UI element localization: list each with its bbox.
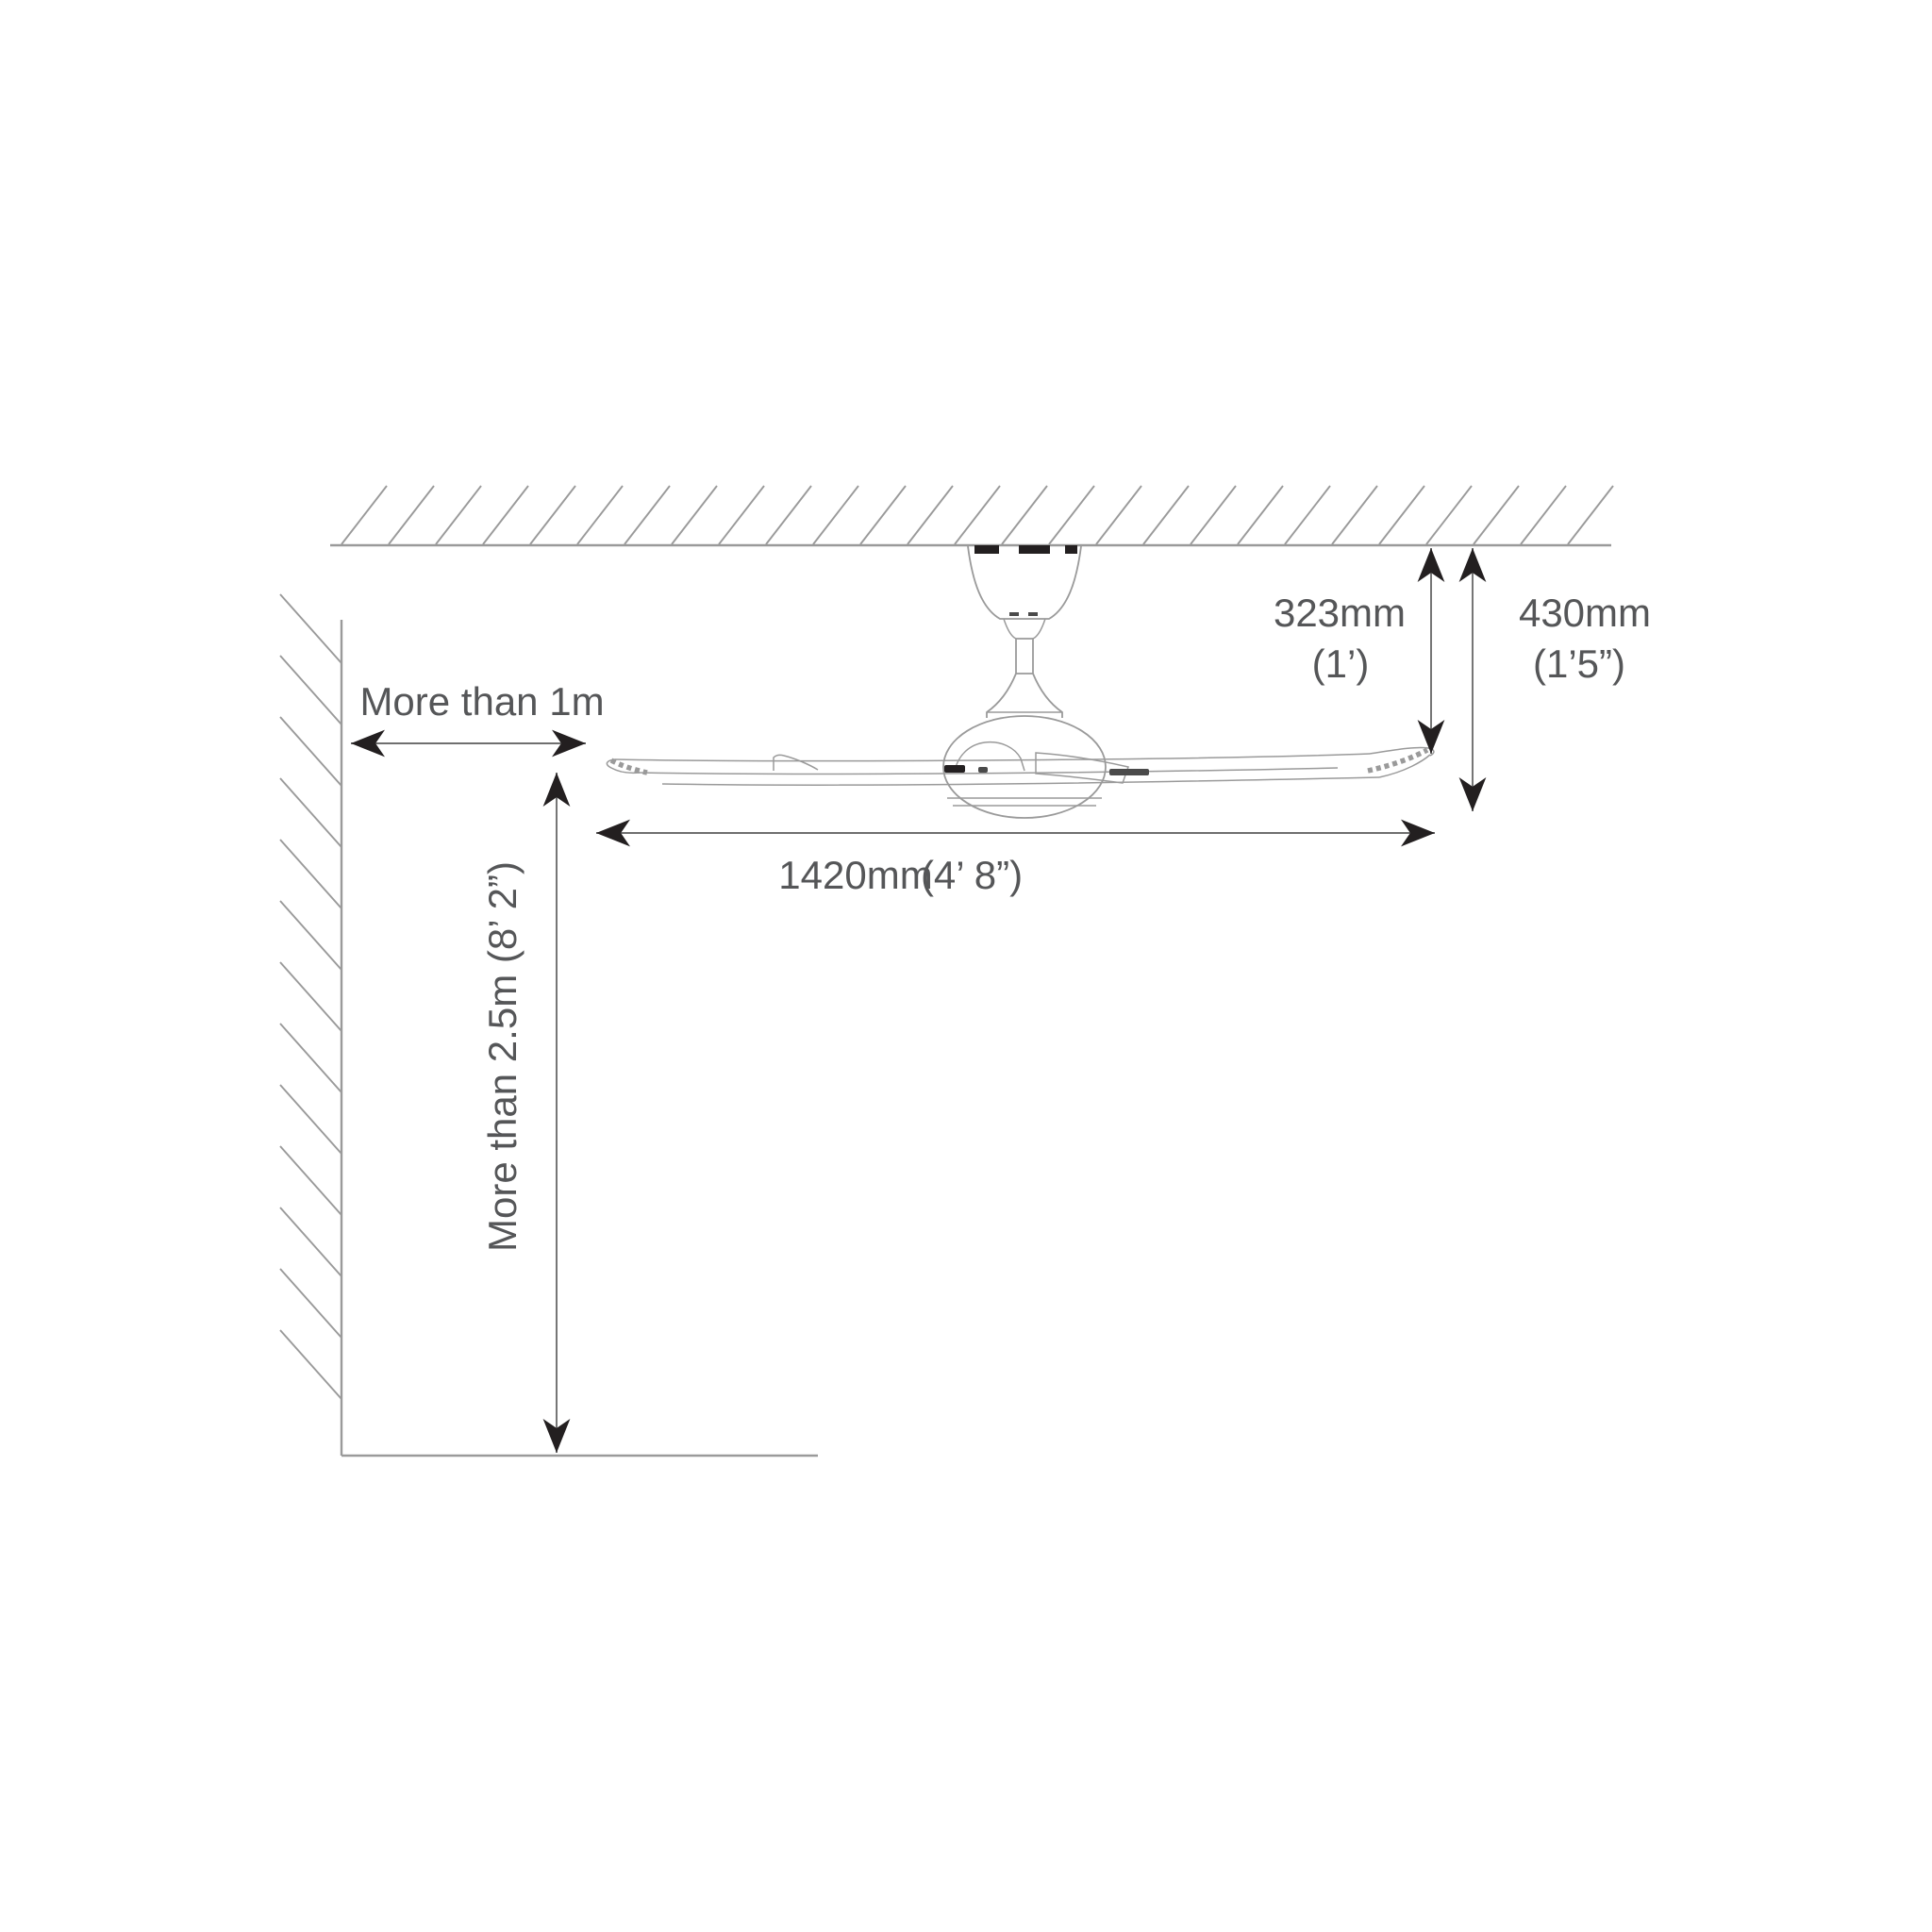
hatch-line xyxy=(341,486,387,544)
hatch-line xyxy=(1474,486,1519,544)
canopy-mark-left xyxy=(1009,612,1019,616)
hub-blade-root xyxy=(1036,753,1128,783)
mount-tab-left xyxy=(974,545,999,554)
ceiling xyxy=(330,486,1613,545)
hatch-line xyxy=(1521,486,1566,544)
hatch-line xyxy=(860,486,906,544)
blade-bottom-edge xyxy=(662,777,1379,785)
ceiling-to-blade-imperial-label: (1’) xyxy=(1312,641,1370,686)
dimension-floor-clearance: More than 2.5m (8’ 2”) xyxy=(480,773,557,1453)
motor-bell-right xyxy=(1033,674,1062,718)
mount-tab-right xyxy=(1065,545,1077,554)
hub-dark-mark-left xyxy=(944,765,965,773)
left-blade-fin xyxy=(774,755,818,771)
hatch-line xyxy=(280,717,341,786)
floor-clearance-label: More than 2.5m (8’ 2”) xyxy=(480,861,525,1252)
wall-clearance-label: More than 1m xyxy=(359,679,604,724)
ceiling-to-blade-mm-label: 323mm xyxy=(1274,591,1406,635)
canopy-mark-right xyxy=(1028,612,1038,616)
hatch-line xyxy=(280,1024,341,1092)
hatch-line xyxy=(1002,486,1047,544)
hatch-line xyxy=(483,486,528,544)
motor-bell-left xyxy=(987,674,1016,718)
ceiling-to-fan-bottom-mm-label: 430mm xyxy=(1519,591,1651,635)
hatch-line xyxy=(625,486,670,544)
hub-bracket xyxy=(955,742,1024,771)
hatch-line xyxy=(1096,486,1141,544)
motor-sphere xyxy=(943,716,1106,818)
ceiling-to-fan-bottom-imperial-label: (1’5”) xyxy=(1533,641,1625,686)
hatch-line xyxy=(813,486,858,544)
hatch-line xyxy=(577,486,623,544)
hatch-line xyxy=(280,778,341,847)
hatch-line xyxy=(389,486,434,544)
dimension-ceiling-to-fan-bottom: 430mm (1’5”) xyxy=(1473,548,1651,811)
hatch-line xyxy=(280,1330,341,1399)
hatch-line xyxy=(766,486,811,544)
blade-hub xyxy=(944,742,1149,783)
hatch-line xyxy=(1285,486,1330,544)
hatch-line xyxy=(280,840,341,908)
hatch-line xyxy=(280,962,341,1031)
fan-installation-clearance-diagram: More than 1m More than 2.5m (8’ 2”) 323m… xyxy=(0,0,1932,1932)
dimension-blade-span: 1420mm (4’ 8”) xyxy=(596,833,1435,897)
hub-dark-mark-center xyxy=(978,767,988,773)
mount-tab-center xyxy=(1019,545,1050,554)
hatch-line xyxy=(1191,486,1236,544)
dimension-ceiling-to-blade: 323mm (1’) xyxy=(1274,548,1431,754)
hatch-line xyxy=(280,1146,341,1215)
blade-top-edge xyxy=(615,754,1370,761)
hatch-line xyxy=(280,1269,341,1338)
hatch-line xyxy=(280,594,341,663)
hatch-line xyxy=(280,1207,341,1276)
hatch-line xyxy=(719,486,764,544)
fan-blades xyxy=(607,747,1434,785)
hatch-line xyxy=(280,901,341,970)
wall-hatching xyxy=(280,594,341,1399)
hatch-line xyxy=(436,486,481,544)
dimension-wall-clearance: More than 1m xyxy=(351,679,605,743)
hub-dark-mark-right xyxy=(1109,769,1149,775)
hatch-line xyxy=(955,486,1000,544)
hatch-line xyxy=(1426,486,1472,544)
hatch-line xyxy=(1379,486,1424,544)
hatch-line xyxy=(672,486,717,544)
hatch-line xyxy=(1568,486,1613,544)
canopy-neck xyxy=(1004,619,1045,639)
hatch-line xyxy=(1049,486,1094,544)
hatch-line xyxy=(1238,486,1283,544)
motor-bell xyxy=(987,674,1062,718)
hatch-line xyxy=(1143,486,1189,544)
hatch-line xyxy=(1332,486,1377,544)
page: More than 1m More than 2.5m (8’ 2”) 323m… xyxy=(0,0,1932,1932)
hatch-line xyxy=(280,1085,341,1154)
motor-housing xyxy=(943,716,1106,818)
hatch-line xyxy=(908,486,953,544)
wall xyxy=(280,594,341,1456)
canopy xyxy=(968,545,1081,639)
blade-span-imperial-label: (4’ 8”) xyxy=(921,853,1023,897)
ceiling-hatching xyxy=(341,486,1613,544)
hatch-line xyxy=(530,486,575,544)
downrod xyxy=(1016,639,1033,674)
canopy-bell xyxy=(968,546,1081,619)
hatch-line xyxy=(280,656,341,724)
ceiling-fan-drawing xyxy=(607,545,1434,818)
blade-span-mm-label: 1420mm xyxy=(778,853,932,897)
